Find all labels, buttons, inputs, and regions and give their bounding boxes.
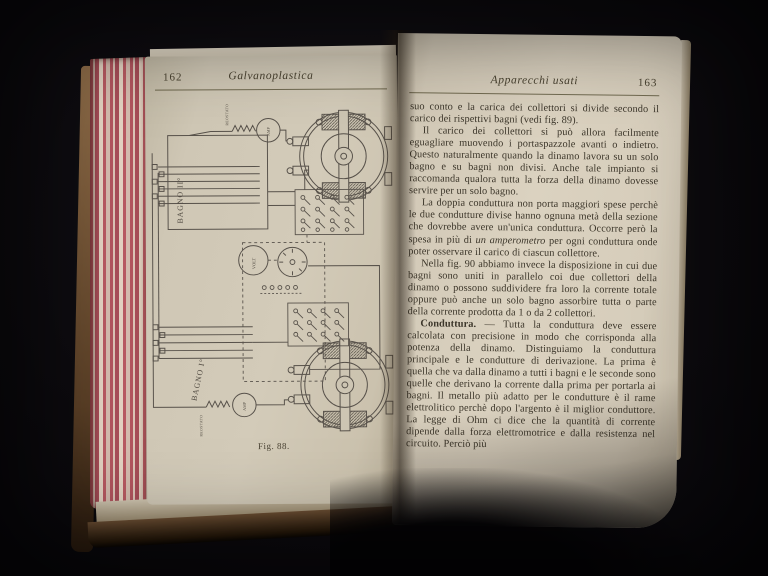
voltmeter-label: VOLT bbox=[251, 257, 256, 269]
running-header-left: Galvanoplastica bbox=[157, 69, 385, 82]
bath-2-label: BAGNO II° bbox=[176, 177, 185, 224]
header-rule-left bbox=[155, 88, 387, 90]
running-header-right: Apparecchi usati bbox=[409, 73, 659, 88]
circuit-diagram: BAGNO II° BAGNO I° bbox=[149, 95, 397, 440]
terminal-row bbox=[262, 285, 297, 289]
commutator-switch bbox=[278, 247, 307, 276]
photo-background: 162 Galvanoplastica bbox=[0, 0, 768, 576]
left-page-header: 162 Galvanoplastica bbox=[157, 69, 385, 86]
bath-tank-1: BAGNO I° bbox=[153, 324, 253, 402]
bath-1-label: BAGNO I° bbox=[190, 358, 208, 402]
rheostat-top-label: REOSTATO bbox=[225, 104, 229, 126]
paragraph: Il carico dei collettori si può allora f… bbox=[409, 125, 659, 200]
rheostat-bottom-label: REOSTATO bbox=[199, 415, 203, 437]
ammeter-bottom-label: AMP bbox=[242, 401, 247, 411]
bath-tank-2: BAGNO II° bbox=[152, 135, 268, 229]
paragraph: La doppia conduttura non porta maggiori … bbox=[408, 198, 658, 261]
ammeter-top: AMP bbox=[257, 118, 281, 142]
dynamo-bottom bbox=[288, 339, 393, 431]
paragraph-text: Tutta la conduttura deve essere calcolat… bbox=[406, 319, 657, 450]
dynamo-top bbox=[287, 110, 392, 202]
page-number-right: 163 bbox=[638, 77, 658, 89]
ammeter-bottom: AMP bbox=[233, 393, 257, 417]
paragraph: Conduttura. — Tutta la conduttura deve e… bbox=[406, 318, 657, 454]
right-page-header: Apparecchi usati 163 bbox=[409, 73, 659, 92]
figure-55: BAGNO II° BAGNO I° bbox=[147, 95, 399, 451]
ammeter-top-label: AMP bbox=[266, 126, 271, 136]
body-text: suo conto e la carica dei collettori si … bbox=[406, 101, 659, 453]
figure-caption: Fig. 88. bbox=[149, 440, 399, 451]
paragraph-separator: — bbox=[476, 319, 503, 330]
paragraph-lead: Conduttura. bbox=[420, 318, 476, 330]
dashed-region bbox=[242, 234, 325, 381]
paragraph: Nella fig. 90 abbiamo invece la disposiz… bbox=[408, 258, 658, 321]
page-edge-stripes bbox=[90, 57, 150, 509]
italic-term: un amperometro bbox=[475, 234, 545, 246]
header-rule-right bbox=[409, 92, 659, 96]
right-page: Apparecchi usati 163 suo conto e la cari… bbox=[392, 33, 682, 528]
paragraph: suo conto e la carica dei collettori si … bbox=[410, 101, 659, 128]
left-page: 162 Galvanoplastica bbox=[145, 55, 399, 504]
